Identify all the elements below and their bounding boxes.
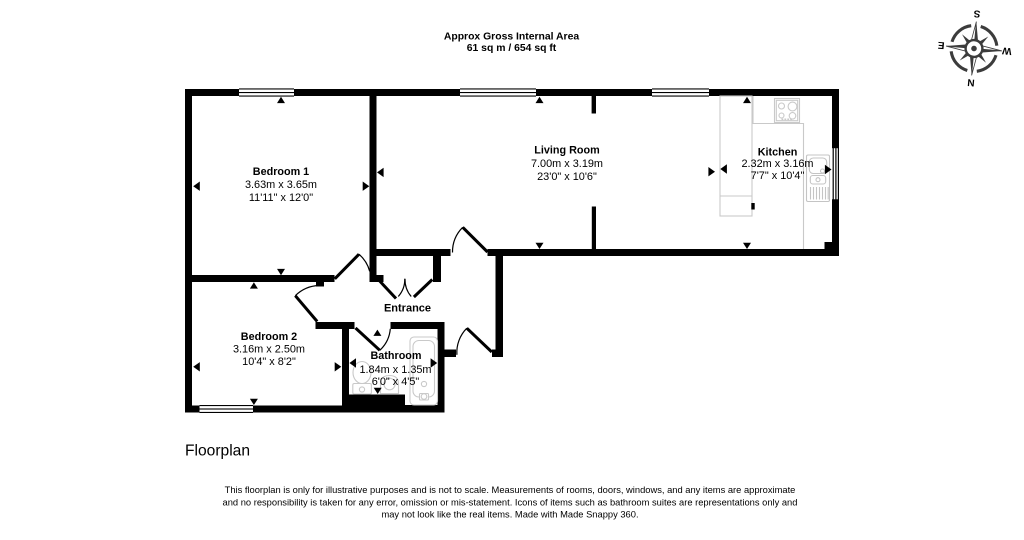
svg-text:3.16m x 2.50m: 3.16m x 2.50m — [233, 344, 305, 356]
svg-text:E: E — [937, 39, 945, 51]
svg-text:Entrance: Entrance — [384, 303, 431, 315]
svg-text:23'0" x 10'6": 23'0" x 10'6" — [537, 171, 597, 183]
svg-text:61 sq m / 654 sq ft: 61 sq m / 654 sq ft — [467, 43, 557, 54]
svg-text:S: S — [973, 7, 981, 19]
svg-text:10'4" x 8'2": 10'4" x 8'2" — [242, 356, 296, 368]
svg-text:Kitchen: Kitchen — [758, 147, 798, 159]
svg-text:7'7" x 10'4": 7'7" x 10'4" — [751, 170, 805, 182]
svg-text:Bedroom 1: Bedroom 1 — [253, 166, 309, 178]
svg-text:2.32m x 3.16m: 2.32m x 3.16m — [741, 158, 813, 170]
svg-text:W: W — [1001, 44, 1012, 56]
svg-text:and no responsibility is taken: and no responsibility is taken for any e… — [223, 497, 798, 507]
svg-text:6'0" x 4'5": 6'0" x 4'5" — [372, 376, 420, 388]
svg-text:Floorplan: Floorplan — [185, 442, 250, 459]
svg-text:Living Room: Living Room — [534, 145, 599, 157]
svg-text:1.84m x 1.35m: 1.84m x 1.35m — [359, 364, 431, 376]
svg-text:Bedroom 2: Bedroom 2 — [241, 331, 297, 343]
svg-text:Bathroom: Bathroom — [371, 350, 422, 362]
svg-text:3.63m x 3.65m: 3.63m x 3.65m — [245, 179, 317, 191]
svg-text:may not look like the real ite: may not look like the real items. Made w… — [381, 510, 638, 520]
svg-text:This floorplan is only for ill: This floorplan is only for illustrative … — [225, 485, 796, 495]
svg-text:Approx Gross Internal Area: Approx Gross Internal Area — [444, 31, 580, 42]
svg-text:11'11" x 12'0": 11'11" x 12'0" — [249, 192, 313, 204]
svg-text:7.00m x 3.19m: 7.00m x 3.19m — [531, 158, 603, 170]
svg-text:N: N — [967, 76, 975, 88]
